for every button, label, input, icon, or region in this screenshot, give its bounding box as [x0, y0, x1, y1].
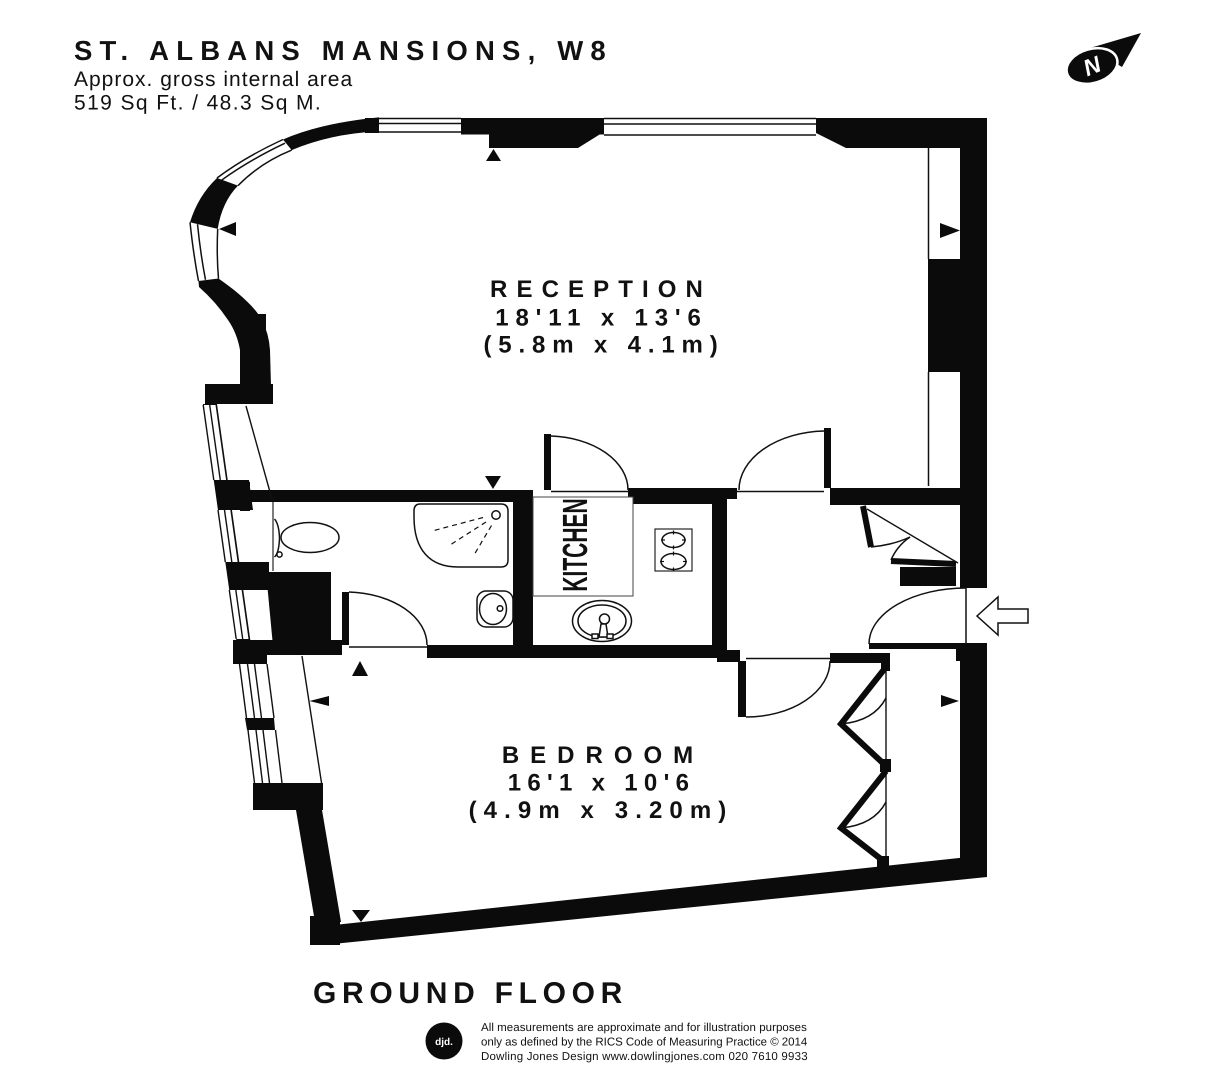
svg-text:BEDROOM: BEDROOM	[502, 742, 704, 769]
svg-text:Approx. gross internal area: Approx. gross internal area	[74, 68, 353, 91]
svg-text:18'11 x 13'6: 18'11 x 13'6	[495, 305, 707, 332]
svg-text:RECEPTION: RECEPTION	[490, 276, 712, 303]
svg-text:ST. ALBANS MANSIONS, W8: ST. ALBANS MANSIONS, W8	[74, 35, 613, 66]
svg-text:All measurements are approxima: All measurements are approximate and for…	[481, 1022, 807, 1034]
svg-text:GROUND FLOOR: GROUND FLOOR	[313, 977, 628, 1010]
svg-text:(4.9m x 3.20m): (4.9m x 3.20m)	[469, 797, 734, 824]
svg-text:519 Sq Ft. / 48.3 Sq M.: 519 Sq Ft. / 48.3 Sq M.	[74, 92, 322, 115]
svg-text:djd.: djd.	[435, 1037, 453, 1048]
svg-text:16'1 x 10'6: 16'1 x 10'6	[508, 770, 695, 797]
svg-text:(5.8m x 4.1m): (5.8m x 4.1m)	[483, 332, 724, 359]
svg-text:KITCHEN: KITCHEN	[556, 498, 595, 591]
svg-text:Dowling Jones Design www.dowli: Dowling Jones Design www.dowlingjones.co…	[481, 1051, 808, 1063]
svg-text:only as defined by the RICS Co: only as defined by the RICS Code of Meas…	[481, 1037, 808, 1049]
